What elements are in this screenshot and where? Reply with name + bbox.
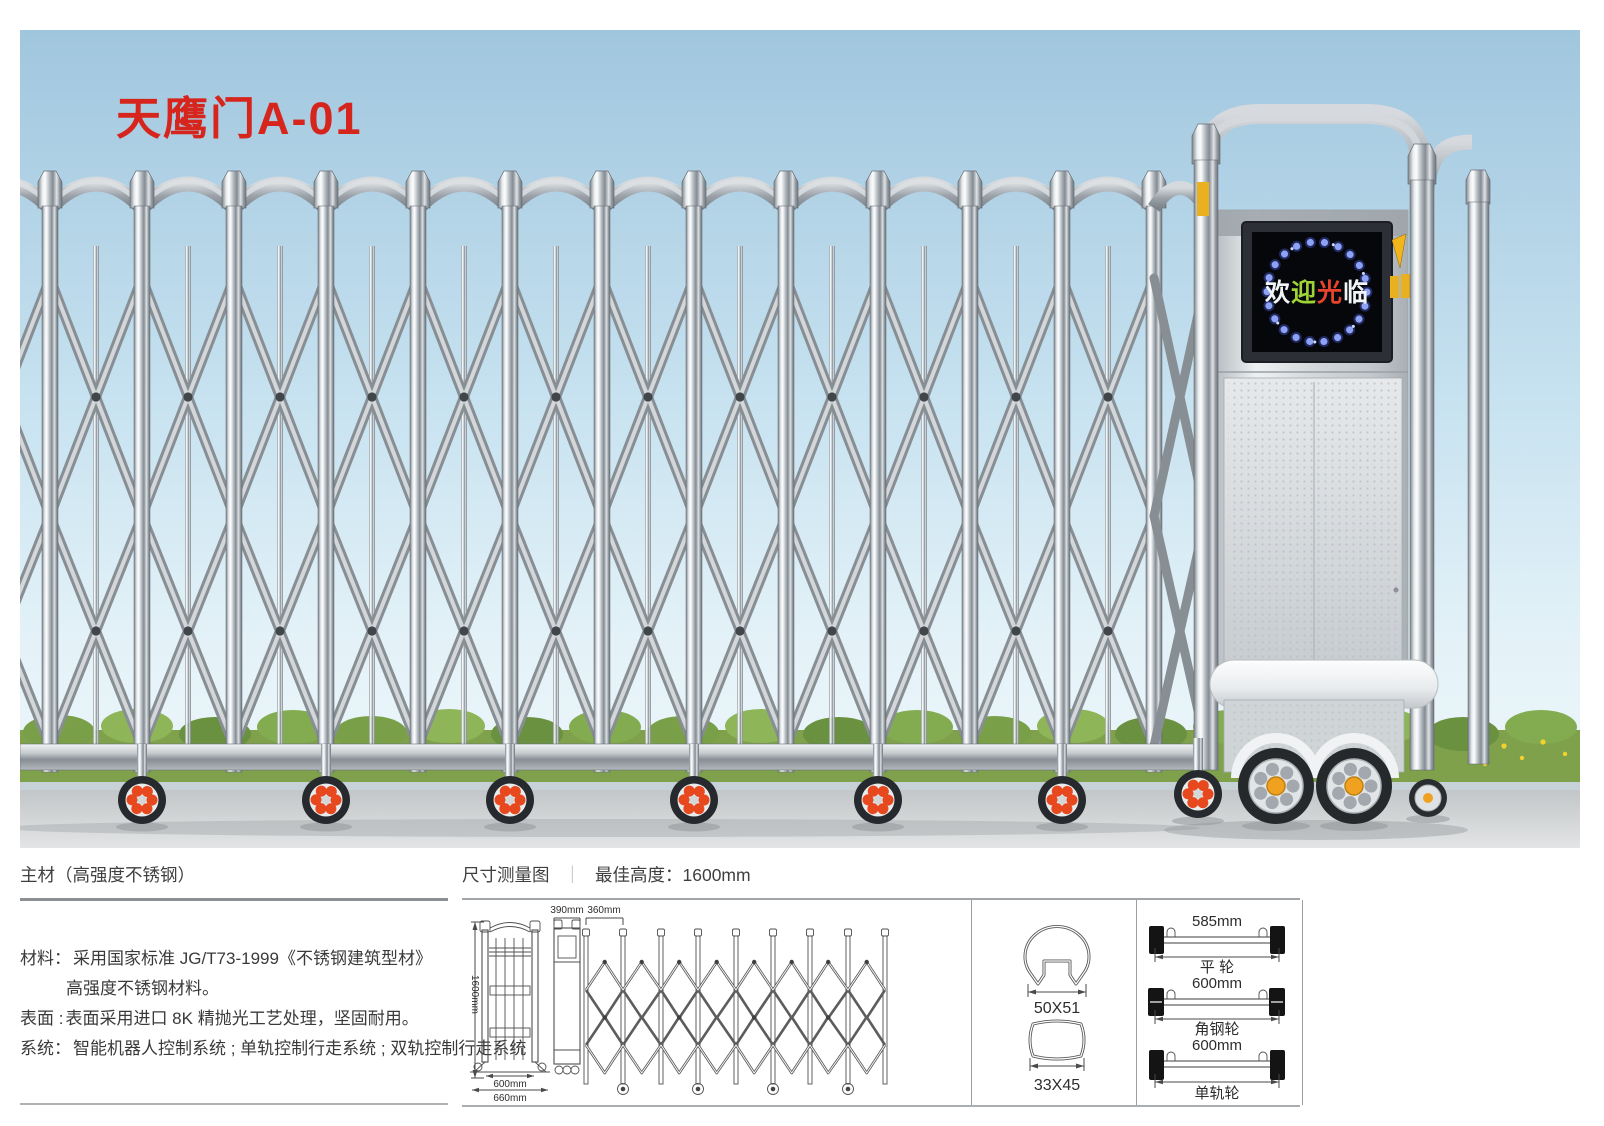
spec-text: 表面采用进口 8K 精抛光工艺处理，坚固耐用。: [65, 1009, 418, 1028]
profile-33x45-label: 33X45: [1034, 1077, 1080, 1094]
dimension-header-title: 尺寸测量图: [462, 862, 550, 887]
gate-inner-width-label: 600mm: [493, 1079, 526, 1090]
profile-cell: 50X51 33X45: [972, 900, 1137, 1105]
catalog-page: 欢迎光临: [0, 0, 1604, 1126]
profile-33x45-shape: [1030, 1021, 1084, 1059]
profile-50x51-shape: [1025, 927, 1089, 984]
gate-measurement-diagram: 1600mm 600mm 660mm: [462, 900, 971, 1105]
led-welcome-text: 欢迎光临: [1264, 278, 1369, 307]
spec-label: 表面 :: [20, 1009, 63, 1028]
wheel-size-label: 585mm: [1192, 913, 1242, 930]
gate-front-view: 1600mm 600mm 660mm: [469, 921, 550, 1104]
wheel-row-angle-steel: 600mm 角钢轮: [1148, 975, 1285, 1038]
wheel-size-label: 600mm: [1192, 1037, 1242, 1054]
dimension-header: 尺寸测量图 ｜ 最佳高度：1600mm: [462, 862, 1300, 900]
wheel-row-mono-rail: 600mm 单轨轮: [1149, 1037, 1285, 1102]
column-sticker: [1197, 182, 1209, 216]
header-divider: ｜: [564, 862, 582, 887]
spec-text: 高强度不锈钢材料。: [66, 979, 219, 998]
wheel-types-diagram: 585mm 平 轮 600mm: [1137, 900, 1302, 1105]
spec-label: 材料：: [20, 949, 71, 968]
product-title: 天鹰门A-01: [116, 82, 363, 147]
wheel-name-label: 单轨轮: [1194, 1085, 1239, 1102]
gate-side-view: 390mm: [550, 905, 583, 1074]
extended-lattice: [586, 960, 885, 1073]
unit-width-label: 360mm: [587, 905, 620, 916]
product-photo: 欢迎光临: [20, 30, 1580, 848]
spec-row-material: 材料：采用国家标准 JG/T73-1999《不锈钢建筑型材》: [20, 944, 452, 974]
spec-label: 系统：: [20, 1039, 71, 1058]
post-depth-label: 390mm: [550, 905, 583, 916]
wheel-types-cell: 585mm 平 轮 600mm: [1137, 900, 1303, 1105]
bottom-rail: [20, 744, 1198, 770]
best-height-label: 最佳高度：1600mm: [595, 862, 751, 887]
gate-height-label: 1600mm: [469, 975, 480, 1014]
profile-50x51-label: 50X51: [1034, 1000, 1080, 1017]
gate-shadow: [20, 819, 1200, 837]
main-material-header: 主材（高强度不锈钢）: [20, 862, 448, 901]
spec-text: 智能机器人控制系统 ; 单轨控制行走系统 ; 双轨控制行走系统: [73, 1039, 526, 1058]
gate-diagram-cell: 1600mm 600mm 660mm: [462, 900, 972, 1105]
far-column: [1468, 202, 1489, 764]
wheel-name-label: 平 轮: [1200, 959, 1234, 976]
left-divider-line: [20, 1103, 448, 1105]
extended-posts: [583, 929, 889, 1084]
spec-row-surface: 表面 :表面采用进口 8K 精抛光工艺处理，坚固耐用。: [20, 1004, 452, 1034]
spec-row-system: 系统：智能机器人控制系统 ; 单轨控制行走系统 ; 双轨控制行走系统: [20, 1034, 452, 1064]
wheel-row-flat: 585mm 平 轮: [1149, 913, 1285, 976]
dimension-table: 1600mm 600mm 660mm: [462, 900, 1300, 1107]
wheel-name-label: 角钢轮: [1194, 1021, 1239, 1038]
wheel-size-label: 600mm: [1192, 975, 1242, 992]
gate-extended-view: 360mm: [583, 905, 889, 1095]
extended-wheels: [618, 1084, 854, 1095]
led-display: 欢迎光临: [1242, 222, 1392, 362]
gate-outer-width-label: 660mm: [493, 1093, 526, 1104]
gate-scene: 欢迎光临: [20, 30, 1580, 848]
spec-text: 采用国家标准 JG/T73-1999《不锈钢建筑型材》: [73, 949, 432, 968]
profile-diagram: 50X51 33X45: [972, 900, 1136, 1105]
spec-row-material-cont: 高强度不锈钢材料。: [20, 974, 452, 1004]
textured-panel: [1218, 372, 1408, 672]
spec-rows: 材料：采用国家标准 JG/T73-1999《不锈钢建筑型材》 高强度不锈钢材料。…: [20, 944, 452, 1064]
